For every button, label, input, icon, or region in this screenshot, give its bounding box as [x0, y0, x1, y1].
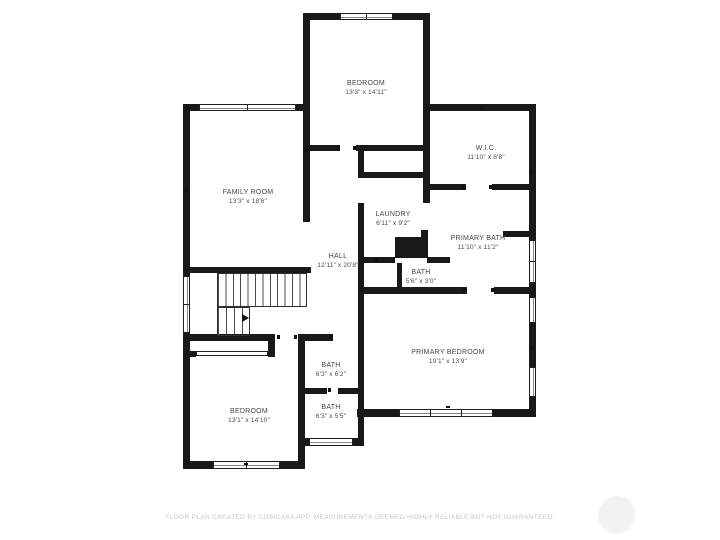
room-name: PRIMARY BEDROOM	[411, 348, 485, 357]
door-tick	[353, 146, 356, 150]
floor-plan-canvas: BEDROOM 13'3" x 14'11" W.I.C. 11'10" x 8…	[0, 0, 720, 540]
room-name: BATH	[316, 361, 346, 370]
door-tick	[277, 335, 280, 339]
room-label-bath-powder: BATH 5'6" x 3'0"	[406, 268, 436, 286]
wall	[397, 263, 402, 287]
wall	[356, 145, 430, 151]
room-label-bath-upper: BATH 6'3" x 6'2"	[316, 361, 346, 379]
dimension-tick	[530, 346, 532, 350]
wall	[494, 287, 536, 294]
staircase	[217, 273, 307, 307]
chase-block	[395, 237, 428, 258]
stair-direction-arrow-icon	[242, 314, 249, 322]
room-label-primary-bedroom: PRIMARY BEDROOM 19'1" x 13'9"	[411, 348, 485, 366]
room-name: W.I.C.	[467, 144, 505, 153]
window	[309, 438, 353, 446]
room-dimensions: 13'1" x 14'10"	[228, 416, 270, 425]
room-name: BATH	[406, 268, 436, 277]
window	[529, 297, 536, 323]
wall	[492, 409, 536, 417]
room-label-bath-lower: BATH 6'3" x 5'5"	[316, 403, 346, 421]
door-tick	[375, 258, 378, 262]
dimension-tick	[446, 406, 450, 408]
window	[340, 13, 393, 20]
dimension-tick	[185, 189, 187, 193]
closet-door	[196, 351, 268, 356]
room-label-primary-bath: PRIMARY BATH 11'10" x 11'2"	[451, 234, 506, 252]
room-name: LAUNDRY	[375, 210, 410, 219]
room-name: BEDROOM	[345, 79, 386, 88]
room-name: BATH	[316, 403, 346, 412]
wall	[492, 184, 536, 190]
dimension-tick	[530, 171, 532, 175]
door-tick	[463, 288, 466, 292]
room-name: FAMILY ROOM	[223, 188, 274, 197]
wall	[423, 184, 466, 190]
wall	[503, 231, 536, 237]
door-tick	[489, 185, 492, 189]
dimension-tick	[479, 107, 483, 109]
room-dimensions: 13'3" x 18'6"	[223, 197, 274, 206]
cubicasa-watermark	[598, 496, 638, 536]
room-dimensions: 13'3" x 14'11"	[345, 88, 386, 97]
room-name: HALL	[317, 252, 358, 261]
door-tick	[491, 288, 494, 292]
room-dimensions: 6'11" x 9'2"	[375, 219, 410, 228]
window	[529, 240, 536, 283]
room-name: PRIMARY BATH	[451, 234, 506, 243]
wall	[358, 287, 467, 294]
wall	[303, 13, 310, 222]
room-label-laundry: LAUNDRY 6'11" x 9'2"	[375, 210, 410, 228]
room-dimensions: 12'11" x 20'8"	[317, 261, 358, 270]
window	[199, 104, 296, 111]
dimension-tick	[244, 463, 248, 465]
wall	[338, 388, 362, 394]
wall	[360, 172, 430, 178]
wall	[303, 145, 340, 151]
door-tick	[330, 335, 333, 339]
wall	[357, 409, 400, 417]
door-tick	[328, 388, 331, 392]
wall	[298, 334, 305, 469]
window	[399, 409, 493, 417]
dimension-tick	[305, 149, 307, 153]
room-name: BEDROOM	[228, 407, 270, 416]
room-dimensions: 6'3" x 6'2"	[316, 370, 346, 379]
room-label-hall: HALL 12'11" x 20'8"	[317, 252, 358, 270]
wall	[427, 257, 450, 263]
room-dimensions: 11'10" x 8'8"	[467, 153, 505, 162]
window	[183, 276, 190, 333]
room-dimensions: 11'10" x 11'2"	[451, 243, 506, 252]
room-label-family-room: FAMILY ROOM 13'3" x 18'6"	[223, 188, 274, 206]
door-tick	[337, 146, 340, 150]
door-tick	[294, 335, 297, 339]
room-label-bedroom-top: BEDROOM 13'3" x 14'11"	[345, 79, 386, 97]
room-label-wic: W.I.C. 11'10" x 8'8"	[467, 144, 505, 162]
wall	[183, 351, 196, 357]
wall	[298, 334, 333, 341]
window	[529, 367, 536, 397]
door-tick	[462, 185, 465, 189]
wall	[298, 388, 327, 394]
room-dimensions: 19'1" x 13'9"	[411, 357, 485, 366]
room-dimensions: 6'3" x 5'5"	[316, 412, 346, 421]
room-dimensions: 5'6" x 3'0"	[406, 277, 436, 286]
room-label-bedroom-bottom: BEDROOM 13'1" x 14'10"	[228, 407, 270, 425]
